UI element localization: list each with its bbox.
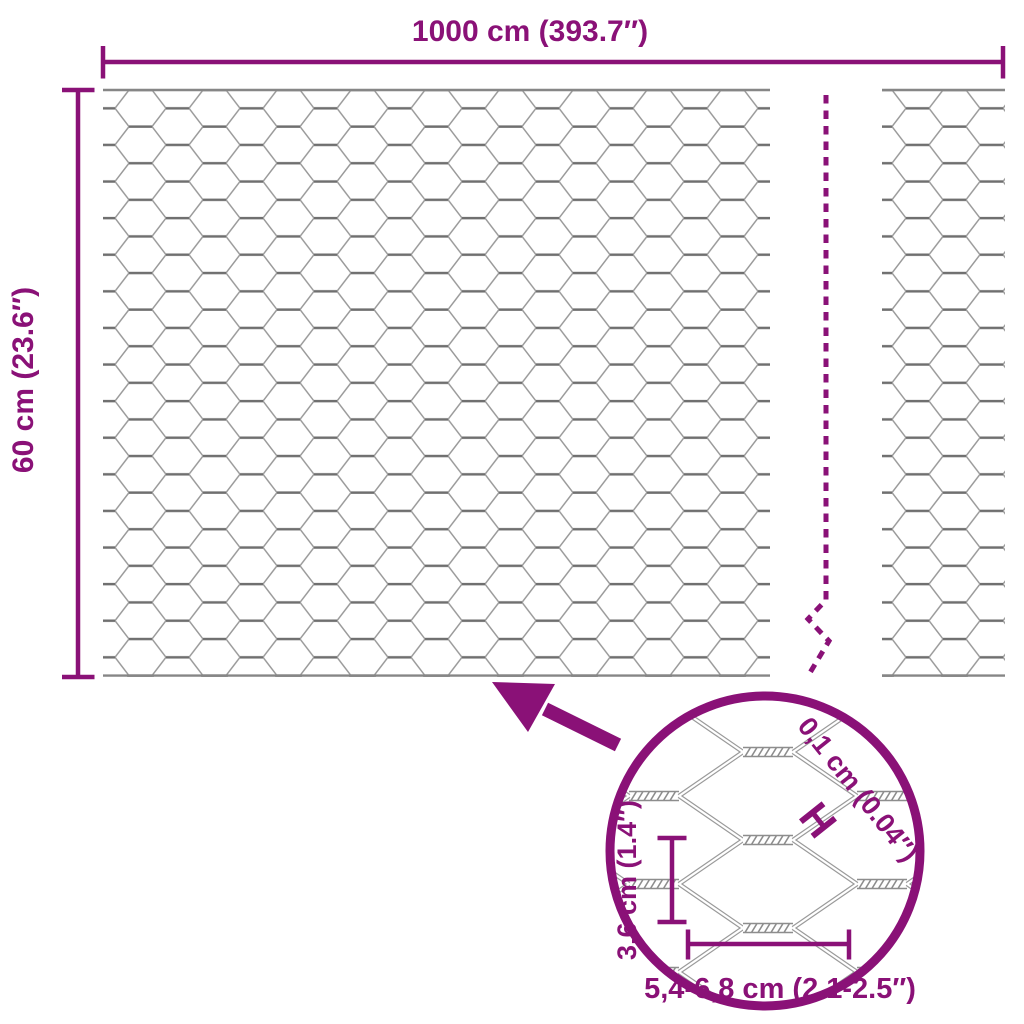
width-dimension-label: 1000 cm (393.7″) [412,15,648,48]
mesh-continuation-strip [882,90,1005,678]
mesh-panel [103,90,770,678]
product-dimension-diagram: 1000 cm (393.7″) 60 cm (23.6″) [0,0,1024,1024]
zoom-arrow [492,682,618,745]
detail-mesh-width-label: 5,4-6,8 cm (2.1-2.5″) [644,973,916,1005]
mesh-strip-fill [882,90,1005,678]
width-dimension [103,46,1003,79]
diagram-canvas: 1000 cm (393.7″) 60 cm (23.6″) [0,0,1024,1024]
zoom-arrow-head [492,682,555,732]
zoom-arrow-shaft [545,709,618,745]
break-line [808,95,829,676]
detail-mesh-height-label: 3,6 cm (1.4″) [612,800,642,960]
height-dimension-label: 60 cm (23.6″) [7,287,40,473]
zoom-detail-circle: 0,1 cm (0.04″) H 3,6 cm (1.4″) 5,4-6,8 c… [610,696,924,1008]
mesh-panel-fill [103,90,770,678]
height-dimension [62,90,95,677]
